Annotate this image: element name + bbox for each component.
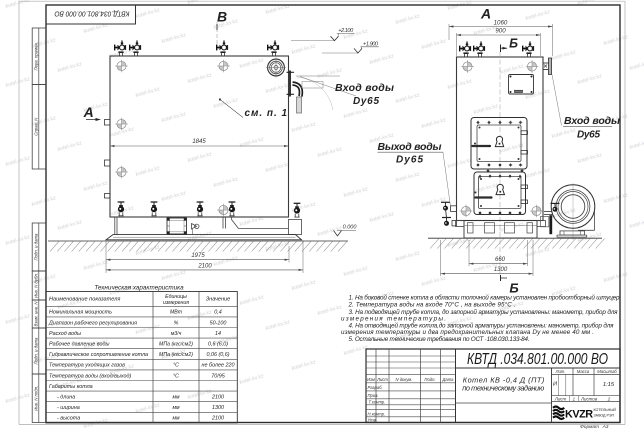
svg-text:Лист: Лист — [554, 396, 567, 401]
svg-text:14: 14 — [215, 331, 221, 337]
svg-text:Подп.: Подп. — [424, 377, 435, 382]
svg-text:2: 2 — [607, 396, 611, 401]
svg-text:Б: Б — [509, 281, 518, 296]
svg-text:Изм: Изм — [367, 377, 375, 382]
svg-text:Значение: Значение — [206, 297, 231, 303]
svg-text:Взам. инв. N: Взам. инв. N — [33, 301, 38, 327]
svg-text:- высота: - высота — [57, 416, 80, 422]
svg-text:5. Остальные технические треб: 5. Остальные технические требования по О… — [349, 335, 530, 343]
svg-text:N докум.: N докум. — [396, 377, 413, 382]
svg-text:- длина: - длина — [57, 395, 75, 401]
svg-text:Гидравлическое сопротивление к: Гидравлическое сопротивление котла — [49, 352, 148, 358]
svg-text:МПа (кгс/см2): МПа (кгс/см2) — [159, 342, 193, 348]
svg-text:Вход воды: Вход воды — [335, 82, 394, 94]
svg-text:°С: °С — [173, 363, 179, 369]
svg-text:660: 660 — [495, 257, 506, 263]
svg-text:50-100: 50-100 — [210, 320, 227, 326]
svg-text:В: В — [217, 9, 227, 25]
svg-text:0.000: 0.000 — [343, 225, 358, 231]
svg-text:KVZR: KVZR — [565, 408, 593, 420]
svg-text:Разраб.: Разраб. — [368, 385, 383, 390]
svg-text:Dy65: Dy65 — [577, 129, 600, 140]
svg-text:1:15: 1:15 — [603, 382, 615, 388]
svg-text:Б: Б — [509, 37, 518, 51]
svg-text:0,06 (0,6): 0,06 (0,6) — [206, 352, 229, 358]
svg-text:+2.100: +2.100 — [338, 28, 354, 34]
svg-text:Лист: Лист — [376, 377, 388, 382]
svg-text:Формат: Формат — [580, 424, 599, 430]
svg-text:Масштаб: Масштаб — [597, 369, 617, 374]
svg-text:Листов: Листов — [580, 396, 598, 401]
svg-text:1060: 1060 — [494, 20, 508, 27]
svg-text:Вход воды: Вход воды — [564, 115, 620, 127]
svg-text:мм: мм — [172, 395, 180, 401]
svg-text:Подп. и дата: Подп. и дата — [33, 233, 38, 261]
svg-text:1845: 1845 — [192, 139, 206, 145]
svg-text:м3/ч: м3/ч — [171, 331, 182, 337]
svg-text:Утв.: Утв. — [368, 418, 378, 423]
svg-text:- ширина: - ширина — [57, 405, 80, 411]
svg-text:Единицы: Единицы — [165, 294, 187, 300]
svg-text:Подп. и дата: Подп. и дата — [33, 337, 38, 365]
svg-text:Пров.: Пров. — [368, 393, 379, 398]
svg-text:Н.контр.: Н.контр. — [368, 412, 386, 417]
svg-text:см. п. 1: см. п. 1 — [245, 108, 288, 119]
svg-text:Инв. N дубл.: Инв. N дубл. — [33, 273, 38, 298]
svg-text:КВТД.034.801.00.000 ВО: КВТД.034.801.00.000 ВО — [54, 10, 129, 19]
svg-text:Лит.: Лит. — [555, 369, 566, 374]
svg-text:КВТД .034.801.00.000 ВО: КВТД .034.801.00.000 ВО — [467, 351, 608, 368]
svg-text:0,6 (6,0): 0,6 (6,0) — [208, 342, 228, 348]
svg-text:А3: А3 — [602, 424, 609, 430]
svg-text:1300: 1300 — [212, 405, 224, 411]
svg-text:Техническая характеристика: Техническая характеристика — [94, 284, 184, 291]
svg-text:Dy65: Dy65 — [353, 96, 379, 107]
svg-text:Dy65: Dy65 — [396, 154, 423, 165]
svg-text:измерения: измерения — [163, 300, 189, 306]
svg-text:1975: 1975 — [191, 253, 205, 259]
svg-text:°С: °С — [173, 373, 179, 379]
svg-text:2100: 2100 — [211, 395, 224, 401]
svg-text:%: % — [174, 320, 179, 326]
svg-text:Наименование показателя: Наименование показателя — [49, 297, 120, 303]
svg-text:ЗАВОД РЭП: ЗАВОД РЭП — [594, 413, 615, 417]
svg-text:измерения температуры.: измерения температуры. — [341, 315, 446, 322]
svg-text:не более 220: не более 220 — [202, 363, 235, 369]
svg-text:по техническому заданию: по техническому заданию — [462, 384, 545, 393]
svg-text:Справ. N: Справ. N — [33, 117, 38, 136]
svg-text:КОТЕЛЬНЫЙ: КОТЕЛЬНЫЙ — [594, 408, 617, 412]
svg-text:Номинальная мощность: Номинальная мощность — [49, 310, 112, 316]
svg-text:Габариты котла: Габариты котла — [49, 384, 93, 390]
svg-text:0,4: 0,4 — [214, 310, 222, 316]
svg-text:Инв. N подл.: Инв. N подл. — [33, 386, 38, 411]
svg-text:мм: мм — [172, 416, 180, 422]
svg-text:Т.контр.: Т.контр. — [369, 400, 386, 405]
svg-text:1. На боковой стенке котла в: 1. На боковой стенке котла в области топ… — [349, 294, 620, 302]
svg-text:измерения температуры и два пр: измерения температуры и два предохраните… — [341, 328, 594, 336]
svg-text:МПа (кгс/см2): МПа (кгс/см2) — [159, 352, 193, 358]
svg-text:Дата: Дата — [441, 377, 454, 382]
svg-text:Перв. примен.: Перв. примен. — [33, 42, 38, 71]
svg-text:Рабочее давление воды: Рабочее давление воды — [49, 342, 109, 348]
svg-text:Масса: Масса — [577, 369, 590, 374]
svg-text:Температура воды (вход/выход): Температура воды (вход/выход) — [49, 373, 132, 379]
svg-text:мм: мм — [172, 405, 180, 411]
svg-text:Выход воды: Выход воды — [378, 141, 442, 153]
svg-text:2. Температура воды на входе: 2. Температура воды на входе 70°С , на в… — [348, 301, 516, 309]
svg-text:2100: 2100 — [211, 416, 224, 422]
svg-text:А: А — [83, 104, 94, 120]
svg-text:+1.900: +1.900 — [363, 42, 379, 48]
svg-text:Диапазон рабочего регулировани: Диапазон рабочего регулирования — [48, 320, 137, 326]
svg-text:900: 900 — [495, 28, 506, 35]
svg-text:МВт: МВт — [170, 310, 183, 316]
svg-text:70/95: 70/95 — [211, 373, 225, 379]
svg-text:Температура уходящих газов: Температура уходящих газов — [49, 363, 125, 369]
svg-text:1300: 1300 — [494, 267, 508, 273]
svg-text:2100: 2100 — [197, 263, 212, 269]
svg-text:Расход воды: Расход воды — [49, 331, 81, 337]
svg-text:И: И — [553, 382, 557, 388]
svg-text:А: А — [480, 6, 491, 22]
